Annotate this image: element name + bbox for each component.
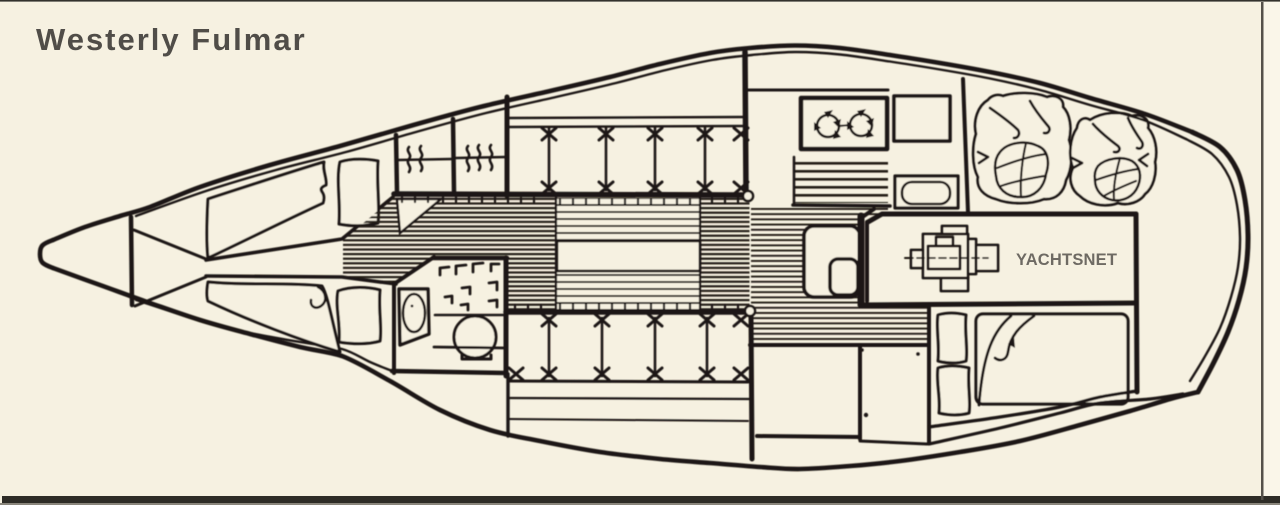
svg-text:YACHTSNET: YACHTSNET xyxy=(1016,251,1117,269)
svg-text:Westerly Fulmar: Westerly Fulmar xyxy=(36,22,307,57)
